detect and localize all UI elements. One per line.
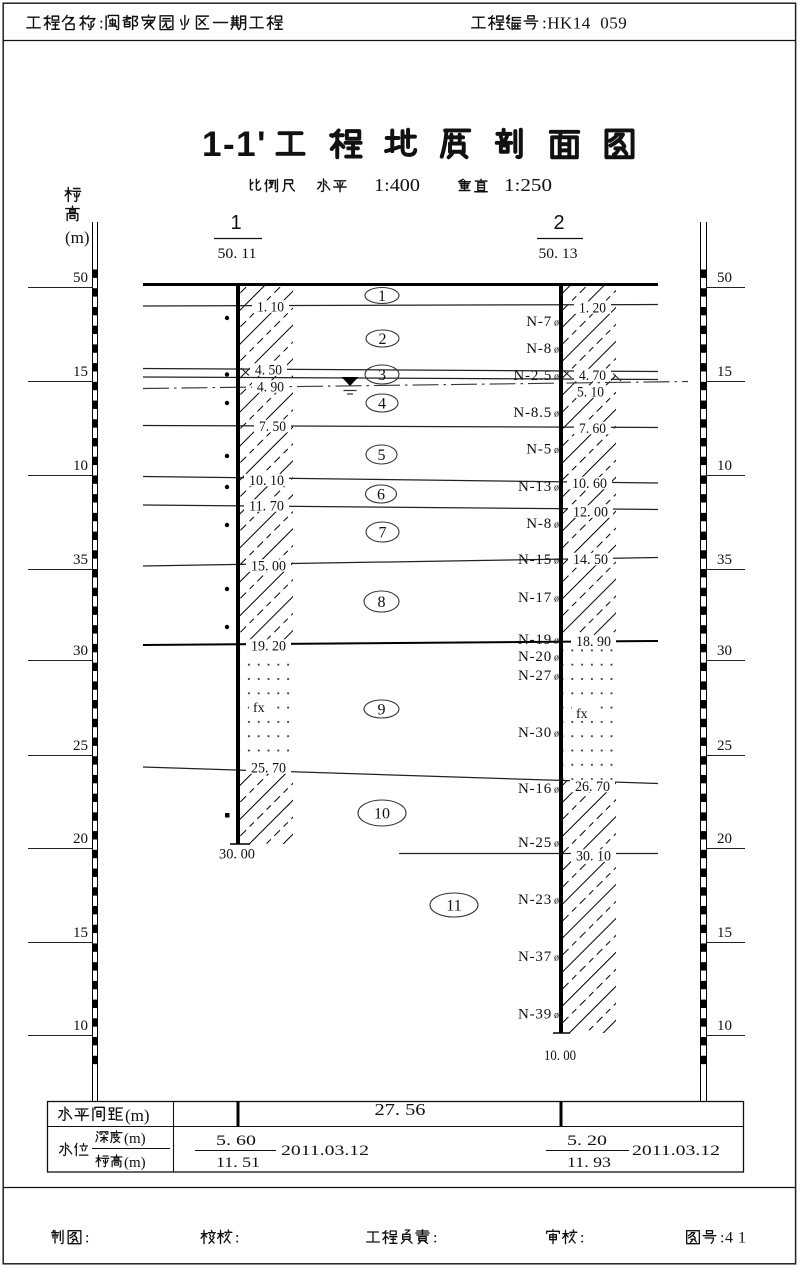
- svg-text:ø: ø: [554, 318, 559, 329]
- svg-text:N-37: N-37: [518, 949, 552, 965]
- svg-text:1:400: 1:400: [374, 175, 420, 195]
- svg-text:2011.03.12: 2011.03.12: [632, 1143, 720, 1159]
- svg-text:15: 15: [73, 925, 88, 941]
- svg-text::4 1: :4 1: [720, 1230, 746, 1247]
- svg-text:fx: fx: [253, 701, 265, 716]
- svg-text::: :: [235, 1230, 239, 1247]
- svg-text:15: 15: [717, 364, 732, 380]
- svg-text:4. 90: 4. 90: [257, 380, 284, 396]
- svg-text:4: 4: [378, 396, 386, 413]
- svg-text:7. 50: 7. 50: [259, 419, 286, 435]
- svg-text:26. 70: 26. 70: [575, 779, 610, 795]
- svg-text:N-27: N-27: [518, 668, 552, 684]
- svg-text:11. 93: 11. 93: [567, 1155, 611, 1171]
- svg-text:fx: fx: [576, 707, 588, 722]
- svg-text:2: 2: [379, 331, 387, 348]
- svg-text:11: 11: [446, 898, 461, 915]
- svg-text:2: 2: [553, 212, 564, 234]
- svg-text:10: 10: [73, 1018, 88, 1034]
- svg-text:1-1': 1-1': [202, 125, 267, 164]
- svg-text:30. 00: 30. 00: [219, 847, 255, 863]
- svg-text:10. 10: 10. 10: [249, 473, 284, 489]
- svg-text:7: 7: [379, 525, 387, 542]
- svg-text:35: 35: [717, 552, 732, 568]
- svg-text:11. 70: 11. 70: [249, 499, 284, 515]
- svg-text::: :: [580, 1230, 584, 1247]
- svg-text:20: 20: [73, 831, 88, 847]
- svg-text:ø: ø: [554, 345, 559, 356]
- svg-text:ø: ø: [554, 556, 559, 567]
- svg-text:ø: ø: [554, 445, 559, 456]
- svg-text:ø: ø: [554, 372, 559, 383]
- svg-text:10: 10: [374, 806, 390, 823]
- svg-text:N-8: N-8: [526, 516, 552, 532]
- svg-text:14. 50: 14. 50: [573, 552, 608, 568]
- svg-text:ø: ø: [554, 785, 559, 796]
- svg-text:N-7: N-7: [526, 314, 552, 330]
- svg-text:N-16: N-16: [518, 781, 552, 797]
- svg-text::: :: [85, 1230, 89, 1247]
- svg-text:15: 15: [73, 364, 88, 380]
- svg-text:27. 56: 27. 56: [375, 1100, 426, 1119]
- svg-text:5. 20: 5. 20: [567, 1133, 607, 1149]
- svg-text:ø: ø: [554, 1010, 559, 1021]
- svg-text:ø: ø: [554, 594, 559, 605]
- svg-text:N-8.5: N-8.5: [513, 405, 552, 421]
- svg-text:ø: ø: [554, 672, 559, 683]
- svg-text:50: 50: [717, 270, 732, 286]
- svg-text:7. 60: 7. 60: [579, 421, 606, 437]
- svg-text:ø: ø: [554, 839, 559, 850]
- svg-text::: :: [99, 14, 104, 33]
- svg-text:N-19: N-19: [518, 632, 552, 648]
- svg-text:ø: ø: [554, 520, 559, 531]
- svg-text:50. 13: 50. 13: [539, 246, 578, 262]
- svg-text:30. 10: 30. 10: [576, 849, 611, 865]
- svg-text:5: 5: [378, 447, 386, 464]
- svg-text:ø: ø: [554, 729, 559, 740]
- svg-text:8: 8: [378, 594, 386, 611]
- svg-text:15: 15: [717, 925, 732, 941]
- svg-text:3: 3: [378, 367, 386, 384]
- svg-text:50: 50: [73, 270, 88, 286]
- svg-text:5. 10: 5. 10: [577, 385, 604, 401]
- svg-text:30: 30: [73, 643, 88, 659]
- svg-text:18. 90: 18. 90: [576, 634, 611, 650]
- svg-text:1. 20: 1. 20: [579, 301, 606, 317]
- svg-text:10. 00: 10. 00: [544, 1048, 576, 1064]
- svg-text:N-25: N-25: [518, 835, 552, 851]
- svg-text:ø: ø: [554, 636, 559, 647]
- svg-text::: :: [433, 1230, 437, 1247]
- svg-text:5. 60: 5. 60: [216, 1133, 256, 1149]
- svg-text:N-20: N-20: [518, 649, 552, 665]
- svg-text:10: 10: [717, 458, 732, 474]
- svg-text:10: 10: [717, 1018, 732, 1034]
- svg-text:1:250: 1:250: [504, 175, 552, 195]
- svg-text:N-8: N-8: [526, 341, 552, 357]
- svg-text:N-39: N-39: [518, 1007, 552, 1023]
- svg-text:N-23: N-23: [518, 892, 552, 908]
- svg-text:N-5: N-5: [526, 442, 552, 458]
- svg-text:N-15: N-15: [518, 552, 552, 568]
- svg-text:ø: ø: [554, 483, 559, 494]
- svg-text:35: 35: [73, 552, 88, 568]
- svg-text:25: 25: [717, 738, 732, 754]
- svg-text:N-30: N-30: [518, 725, 552, 741]
- svg-text:6: 6: [377, 487, 385, 504]
- svg-text:25: 25: [73, 738, 88, 754]
- svg-text:4. 70: 4. 70: [579, 368, 606, 384]
- svg-text:ø: ø: [554, 953, 559, 964]
- svg-text:ø: ø: [554, 409, 559, 420]
- svg-text:ø: ø: [554, 653, 559, 664]
- svg-text:(m): (m): [124, 1131, 146, 1147]
- svg-text:10: 10: [73, 458, 88, 474]
- svg-text:1. 10: 1. 10: [257, 300, 284, 316]
- svg-text:20: 20: [717, 831, 732, 847]
- svg-text:(m): (m): [124, 1155, 146, 1171]
- svg-text:ø: ø: [554, 896, 559, 907]
- svg-text:(m): (m): [65, 228, 90, 247]
- svg-text:(m): (m): [125, 1106, 150, 1125]
- svg-text:N-13: N-13: [518, 479, 552, 495]
- svg-text::HK14 059: :HK14 059: [542, 14, 627, 33]
- svg-text:15. 00: 15. 00: [251, 559, 286, 575]
- svg-text:2011.03.12: 2011.03.12: [281, 1143, 369, 1159]
- svg-text:11. 51: 11. 51: [216, 1155, 260, 1171]
- svg-text:10. 60: 10. 60: [572, 476, 607, 492]
- svg-text:4. 50: 4. 50: [255, 363, 282, 379]
- svg-text:1: 1: [230, 212, 241, 234]
- svg-text:19. 20: 19. 20: [251, 639, 286, 655]
- svg-text:1: 1: [378, 288, 386, 305]
- svg-text:30: 30: [717, 643, 732, 659]
- svg-text:9: 9: [378, 702, 386, 719]
- svg-text:50. 11: 50. 11: [218, 246, 257, 262]
- svg-text:N-17: N-17: [518, 590, 552, 606]
- svg-text:N-2.5: N-2.5: [513, 368, 552, 384]
- svg-text:25. 70: 25. 70: [251, 761, 286, 777]
- svg-text:12. 00: 12. 00: [573, 505, 608, 521]
